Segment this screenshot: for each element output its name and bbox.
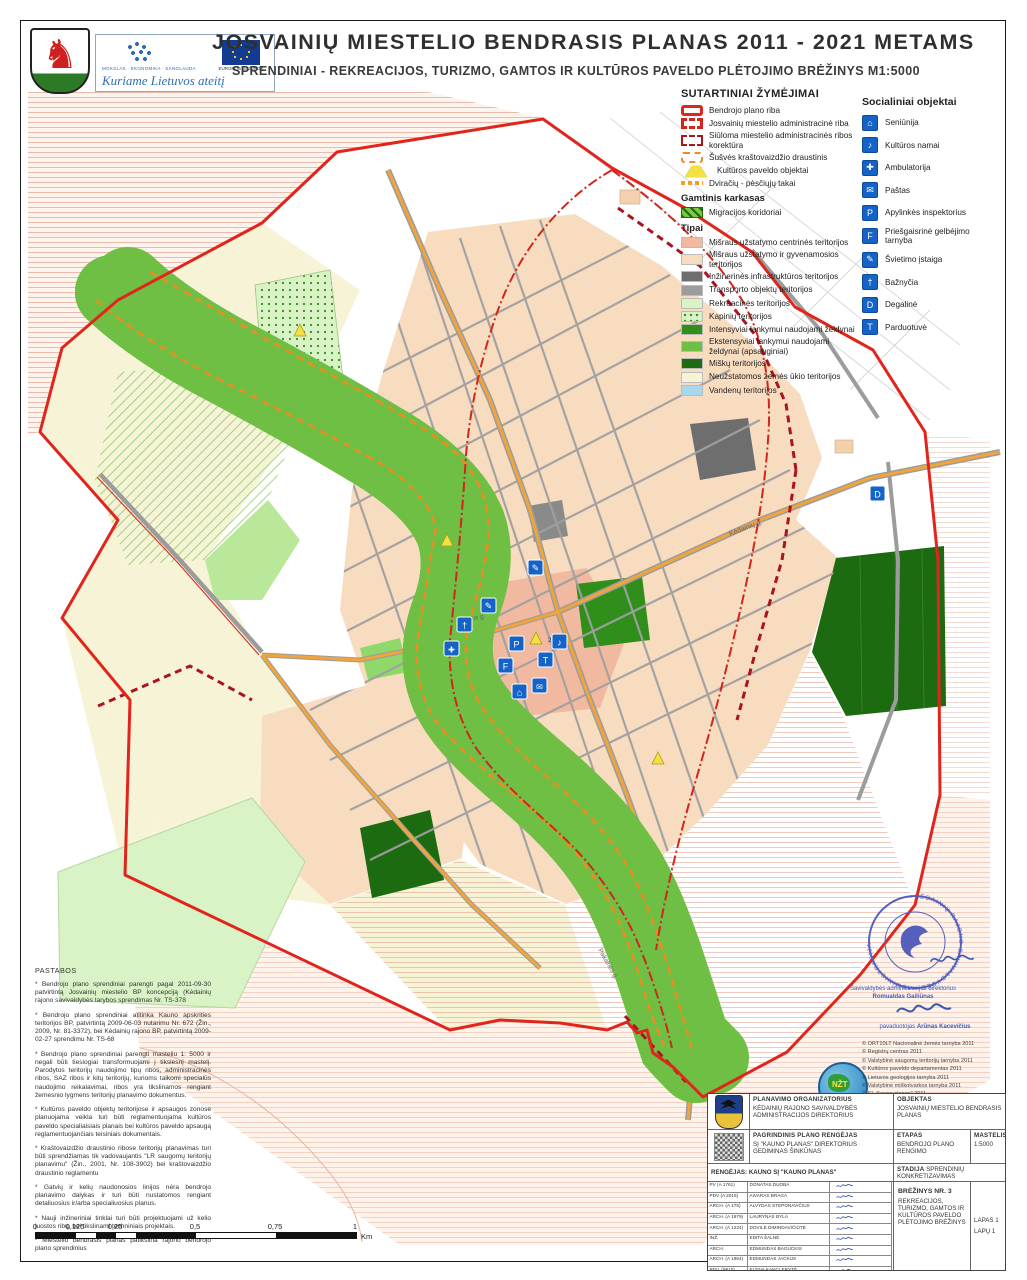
page-subtitle: SPRENDINIAI - REKREACIJOS, TURIZMO, GAMT…: [232, 64, 920, 78]
bike-path-swatch: [681, 181, 703, 185]
lithuania-map-logo-icon: [124, 39, 158, 65]
cemetery-swatch: [681, 311, 703, 322]
types-title: Tipai: [681, 223, 859, 234]
fire-service-icon: F: [862, 228, 878, 244]
type-swatch: [681, 341, 703, 352]
team-member-name: EDMUNDAS BAGUCKIS: [748, 1246, 830, 1257]
map-icon-school-1: ✎: [528, 560, 543, 575]
preparer-row: RENGĖJAS: KAUNO SĮ "KAUNO PLANAS": [708, 1164, 894, 1182]
signature-squiggle: [931, 955, 974, 961]
notes-title: PASTABOS: [35, 966, 211, 975]
team-table: PV (A 1761)DONATAS DUOBAPDV (A 2015)AIVA…: [708, 1182, 894, 1270]
kedainiai-crest-icon: [708, 1094, 750, 1130]
type-swatch: [681, 271, 703, 282]
team-member-code: PDV (A 2015): [708, 1193, 748, 1204]
page-title: JOSVAINIŲ MIESTELIO BENDRASIS PLANAS 201…: [212, 30, 975, 55]
sheet-count-cell: LAPAS 1 LAPŲ 1: [971, 1182, 1005, 1270]
team-member-name: DOVILĖ DIMINDAVIČIŪTĖ: [748, 1224, 830, 1235]
eldership-icon: ⌂: [862, 115, 878, 131]
team-member-signature: [830, 1256, 892, 1267]
note: * Bendrojo plano sprendiniai atitinka Ka…: [35, 1012, 211, 1045]
map-icon-shop: T: [538, 652, 553, 667]
social-item: DDegalinė: [862, 297, 984, 313]
stamp-eagle-icon: [901, 926, 928, 959]
scale-bar-segments: [35, 1232, 357, 1239]
legend-item: Siūloma miestelio administracinės ribos …: [681, 131, 859, 150]
scale-bar: 0 0,125 0,25 0,5 0,75 1 Km: [35, 1222, 395, 1239]
map-icon-fire-service: F: [498, 658, 513, 673]
social-item: TParduotuvė: [862, 319, 984, 335]
legend-item: Inžinerinės infrastruktūros teritorijos: [681, 271, 859, 282]
legend-item: Josvainių miestelio administracinė riba: [681, 118, 859, 129]
team-member-code: ARCH.: [708, 1246, 748, 1257]
social-item: ✎Švietimo įstaiga: [862, 252, 984, 268]
social-item: ♪Kultūros namai: [862, 137, 984, 153]
heritage-triangle-icon: [685, 166, 707, 177]
team-member-code: ARCH. (A 1979): [708, 1214, 748, 1225]
legend-item: Mišraus užstatymo centrinės teritorijos: [681, 237, 859, 248]
ambulatory-icon: ✚: [862, 160, 878, 176]
team-member-name: DONATAS DUOBA: [748, 1182, 830, 1193]
svg-text:T: T: [543, 656, 549, 666]
social-item: ✉Paštas: [862, 182, 984, 198]
admin-boundary-swatch: [681, 118, 703, 129]
scale-tick: 0,75: [268, 1222, 283, 1231]
map-icon-fuel-station: D: [870, 486, 885, 501]
scale-tick: 0,125: [66, 1222, 85, 1231]
scale-tick: 0,25: [108, 1222, 123, 1231]
title-block: PLANAVIMO ORGANIZATORIUS KĖDAINIŲ RAJONO…: [707, 1093, 1006, 1271]
legend-item: Rekreacinės teritorijos: [681, 298, 859, 309]
nature-frame-title: Gamtinis karkasas: [681, 193, 859, 204]
legend-item: Intensyviai lankymui naudojami želdynai: [681, 324, 859, 335]
migration-corridor-swatch: [681, 207, 703, 218]
social-item: PApylinkės inspektorius: [862, 205, 984, 221]
social-objects-panel: Socialiniai objektai ⌂Seniūnija ♪Kultūro…: [862, 96, 984, 342]
correction-swatch: [681, 135, 703, 146]
post-icon: ✉: [862, 182, 878, 198]
legend-title: SUTARTINIAI ŽYMĖJIMAI: [681, 88, 859, 100]
director-signature-label: Savivaldybės administracijos direktorius…: [848, 986, 958, 1002]
shop-icon: T: [862, 319, 878, 335]
knight-icon: ♞: [42, 35, 78, 75]
legend-item: Transporto objektų teritorijos: [681, 285, 859, 296]
reserve-swatch: [681, 152, 703, 163]
program-slogan: Kuriame Lietuvos ateitį: [102, 73, 225, 89]
team-member-name: EDMUNDAS JACKUS: [748, 1256, 830, 1267]
svg-text:⌂: ⌂: [517, 688, 522, 698]
fuel-station-icon: D: [862, 297, 878, 313]
team-member-name: EDITA ŠALNĖ: [748, 1235, 830, 1246]
note: * Kraštovaizdžio draustinio ribose terit…: [35, 1145, 211, 1178]
team-member-signature: [830, 1203, 892, 1214]
team-member-code: ARCH. (A 175): [708, 1203, 748, 1214]
stage-cell: ETAPAS BENDROJO PLANO RENGIMO: [894, 1130, 971, 1164]
note: * Gatvių ir kelių naudonosios linijos nė…: [35, 1184, 211, 1209]
legend-item: Kultūros paveldo objektai: [681, 166, 859, 177]
legend-item: Kapinių teritorijos: [681, 311, 859, 322]
note: * Bendrojo plano sprendiniai parengti ma…: [35, 1051, 211, 1100]
legend-item: Ekstensyviai lankymui naudojami želdynai…: [681, 337, 859, 356]
team-member-name: AIVARAS BRAGA: [748, 1193, 830, 1204]
svg-text:D: D: [874, 490, 881, 500]
team-member-signature: [830, 1246, 892, 1257]
svg-text:✎: ✎: [485, 601, 493, 611]
scale-cell: MASTELIS 1:5000: [971, 1130, 1005, 1164]
plan-sheet: 21311 Kėdainių g. Gojaus g. Pakalnės g. …: [0, 0, 1027, 1280]
approval-stamp-area: KĖDAINIŲ RAJONO SAVIVALDYBĖS • ADMINISTR…: [840, 882, 1005, 1042]
stamp-thumbnail: [708, 1130, 750, 1164]
svg-text:✉: ✉: [536, 683, 543, 692]
team-member-code: PDV. (9810): [708, 1267, 748, 1270]
legend-item: Dviračių - pėsčiųjų takai: [681, 179, 859, 188]
type-swatch: [681, 254, 703, 265]
map-icon-post: ✉: [532, 678, 547, 693]
legend-item: Migracijos koridoriai: [681, 207, 859, 218]
team-member-signature: [830, 1224, 892, 1235]
main-preparer-cell: PAGRINDINIS PLANO RENGĖJAS SĮ "KAUNO PLA…: [750, 1130, 894, 1164]
social-item: ✚Ambulatorija: [862, 160, 984, 176]
plan-boundary-swatch: [681, 105, 703, 116]
team-member-signature: [830, 1267, 892, 1270]
type-swatch: [681, 372, 703, 383]
team-member-signature: [830, 1235, 892, 1246]
map-icon-eldership: ⌂: [512, 684, 527, 699]
team-member-name: ALVYDAS STEPONAVIČIUS: [748, 1203, 830, 1214]
legend-panel: SUTARTINIAI ŽYMĖJIMAI Bendrojo plano rib…: [681, 88, 859, 398]
team-member-name: LAURYNAS BYLA: [748, 1214, 830, 1225]
map-icon-school-2: ✎: [481, 598, 496, 613]
team-member-name: ELENA KANCLERYTĖ: [748, 1267, 830, 1270]
legend-item: Neužstatomos žemės ūkio teritorijos: [681, 372, 859, 383]
team-member-signature: [830, 1193, 892, 1204]
program-line: MOKSLAS · EKONOMIKA · SANGLAUDA: [102, 66, 212, 71]
team-member-code: ARCH. (A 1964): [708, 1256, 748, 1267]
scale-unit: Km: [361, 1232, 372, 1241]
signature-squiggle: [897, 1004, 951, 1012]
type-swatch: [681, 324, 703, 335]
notes-panel: PASTABOS * Bendrojo plano sprendiniai pa…: [35, 966, 211, 1260]
legend-item: Bendrojo plano riba: [681, 105, 859, 116]
social-item: FPriešgaisrinė gelbėjimo tarnyba: [862, 227, 984, 245]
scale-tick: 1: [353, 1222, 357, 1231]
social-item: †Bažnyčia: [862, 274, 984, 290]
scale-tick: 0: [33, 1222, 37, 1231]
map-icon-culture-house: ♪: [552, 634, 567, 649]
map-icon-ambulatory: ✚: [444, 641, 459, 656]
map-icon-church: †: [457, 617, 472, 632]
social-item: ⌂Seniūnija: [862, 115, 984, 131]
drawing-cell: BRĖŽINYS NR. 3 REKREACIJOS, TURIZMO, GAM…: [894, 1182, 971, 1270]
svg-text:♪: ♪: [557, 638, 562, 648]
culture-house-icon: ♪: [862, 137, 878, 153]
svg-text:F: F: [503, 662, 509, 672]
organizer-cell: PLANAVIMO ORGANIZATORIUS KĖDAINIŲ RAJONO…: [750, 1094, 894, 1130]
note: * Kultūros paveldo objektų teritorijose …: [35, 1106, 211, 1139]
type-swatch: [681, 285, 703, 296]
police-icon: P: [862, 205, 878, 221]
legend-item: Šušvės kraštovaizdžio draustinis: [681, 152, 859, 163]
map-icon-inspector: P: [509, 636, 524, 651]
type-swatch: [681, 385, 703, 396]
svg-text:✚: ✚: [448, 646, 455, 655]
svg-text:†: †: [462, 621, 467, 631]
svg-text:P: P: [513, 640, 519, 650]
legend-item: Miškų teritorijos: [681, 358, 859, 369]
legend-item: Mišraus užstatymo ir gyvenamosios terito…: [681, 250, 859, 269]
legend-item: Vandenų teritorijos: [681, 385, 859, 396]
note: * Bendrojo plano sprendiniai parengti pa…: [35, 981, 211, 1006]
svg-text:✎: ✎: [532, 563, 540, 573]
team-member-signature: [830, 1182, 892, 1193]
object-cell: OBJEKTAS JOSVAINIŲ MIESTELIO BENDRASIS P…: [894, 1094, 1005, 1130]
team-member-code: ARCH. (A 1224): [708, 1224, 748, 1235]
scale-tick: 0,5: [190, 1222, 200, 1231]
type-swatch: [681, 358, 703, 369]
note: * Miestelio bendrasis planas patikslina …: [35, 1237, 211, 1253]
stage-detail-cell: STADIJA SPRENDINIŲ KONKRETIZAVIMAS: [894, 1164, 1005, 1182]
education-icon: ✎: [862, 252, 878, 268]
type-swatch: [681, 237, 703, 248]
team-member-code: PV (A 1761): [708, 1182, 748, 1193]
deputy-signature-label: pavaduotojas Arūnas Kacevičius: [870, 1024, 980, 1032]
team-member-signature: [830, 1214, 892, 1225]
type-swatch: [681, 298, 703, 309]
team-member-code: INŽ.: [708, 1235, 748, 1246]
church-icon: †: [862, 274, 878, 290]
social-objects-title: Socialiniai objektai: [862, 96, 984, 108]
josvainiai-coat-of-arms: ♞: [30, 28, 86, 94]
